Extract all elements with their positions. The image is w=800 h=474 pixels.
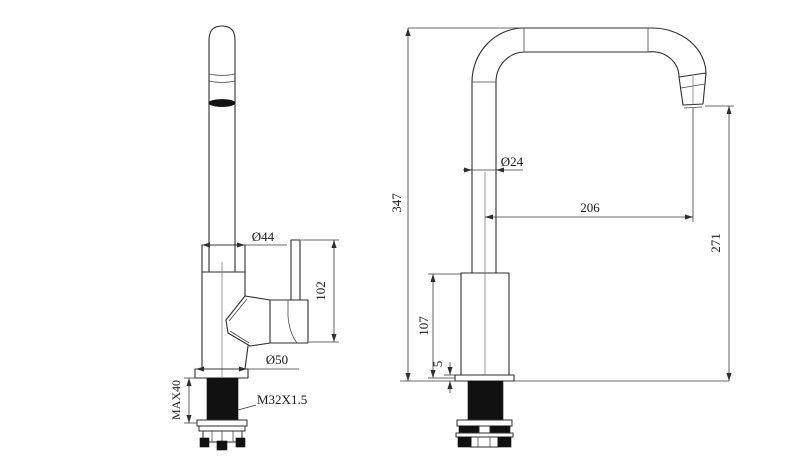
mounting-nut-side — [471, 437, 498, 447]
dim-max-thickness-ext — [184, 378, 197, 423]
seal-band — [209, 99, 235, 106]
handle-knob — [291, 240, 300, 300]
thread-spec-label: M32X1.5 — [257, 392, 307, 407]
nut-block-left — [458, 437, 471, 447]
dim-total-height-label: 347 — [389, 193, 404, 213]
valve-housing — [226, 296, 270, 346]
dim-body-height-label: 107 — [416, 316, 431, 336]
dim-tube-diameter-label: Ø24 — [501, 154, 524, 169]
threaded-shank-front — [207, 378, 238, 420]
base-flange-side — [455, 375, 514, 381]
nut-band-gap — [479, 426, 490, 433]
threaded-shank-side — [468, 381, 503, 420]
dim-handle-height-label: 102 — [313, 281, 328, 301]
technical-drawing: Ø44 102 Ø50 MAX40 M32X1.5 — [0, 0, 800, 474]
side-view: 347 Ø24 206 271 107 5 — [389, 28, 734, 447]
front-body — [202, 245, 248, 369]
washer-front-2 — [199, 426, 245, 431]
nozzle — [679, 73, 706, 105]
thread-spec-leader — [238, 405, 256, 410]
bend-transition-ticks — [472, 28, 648, 82]
handle-inner-detail — [288, 300, 297, 343]
nut-foot-left — [200, 438, 209, 447]
valve-housing-inner-lines — [229, 299, 249, 343]
dim-clearance-label: 271 — [708, 233, 723, 253]
dim-base-diameter-label: Ø50 — [266, 352, 288, 367]
front-view: Ø44 102 Ø50 MAX40 M32X1.5 — [169, 26, 339, 450]
nut-foot-right — [236, 438, 245, 447]
side-spout-outline — [472, 28, 706, 273]
dim-reach-label: 206 — [580, 200, 600, 215]
dim-max-thickness-label: MAX40 — [169, 380, 183, 420]
drawing-canvas: Ø44 102 Ø50 MAX40 M32X1.5 — [0, 0, 800, 474]
aerator-ring-lines — [209, 74, 235, 83]
nut-block-right — [498, 437, 511, 447]
handle-body — [270, 300, 308, 343]
washer-side-2 — [456, 433, 513, 437]
dim-flange-label: 5 — [430, 361, 445, 368]
nut-stem — [217, 441, 227, 450]
washer-front-1 — [197, 420, 247, 426]
washer-side-1 — [457, 420, 512, 426]
base-flange-front — [195, 369, 248, 378]
front-spout-tube — [209, 26, 235, 245]
dim-body-diameter-label: Ø44 — [252, 229, 275, 244]
